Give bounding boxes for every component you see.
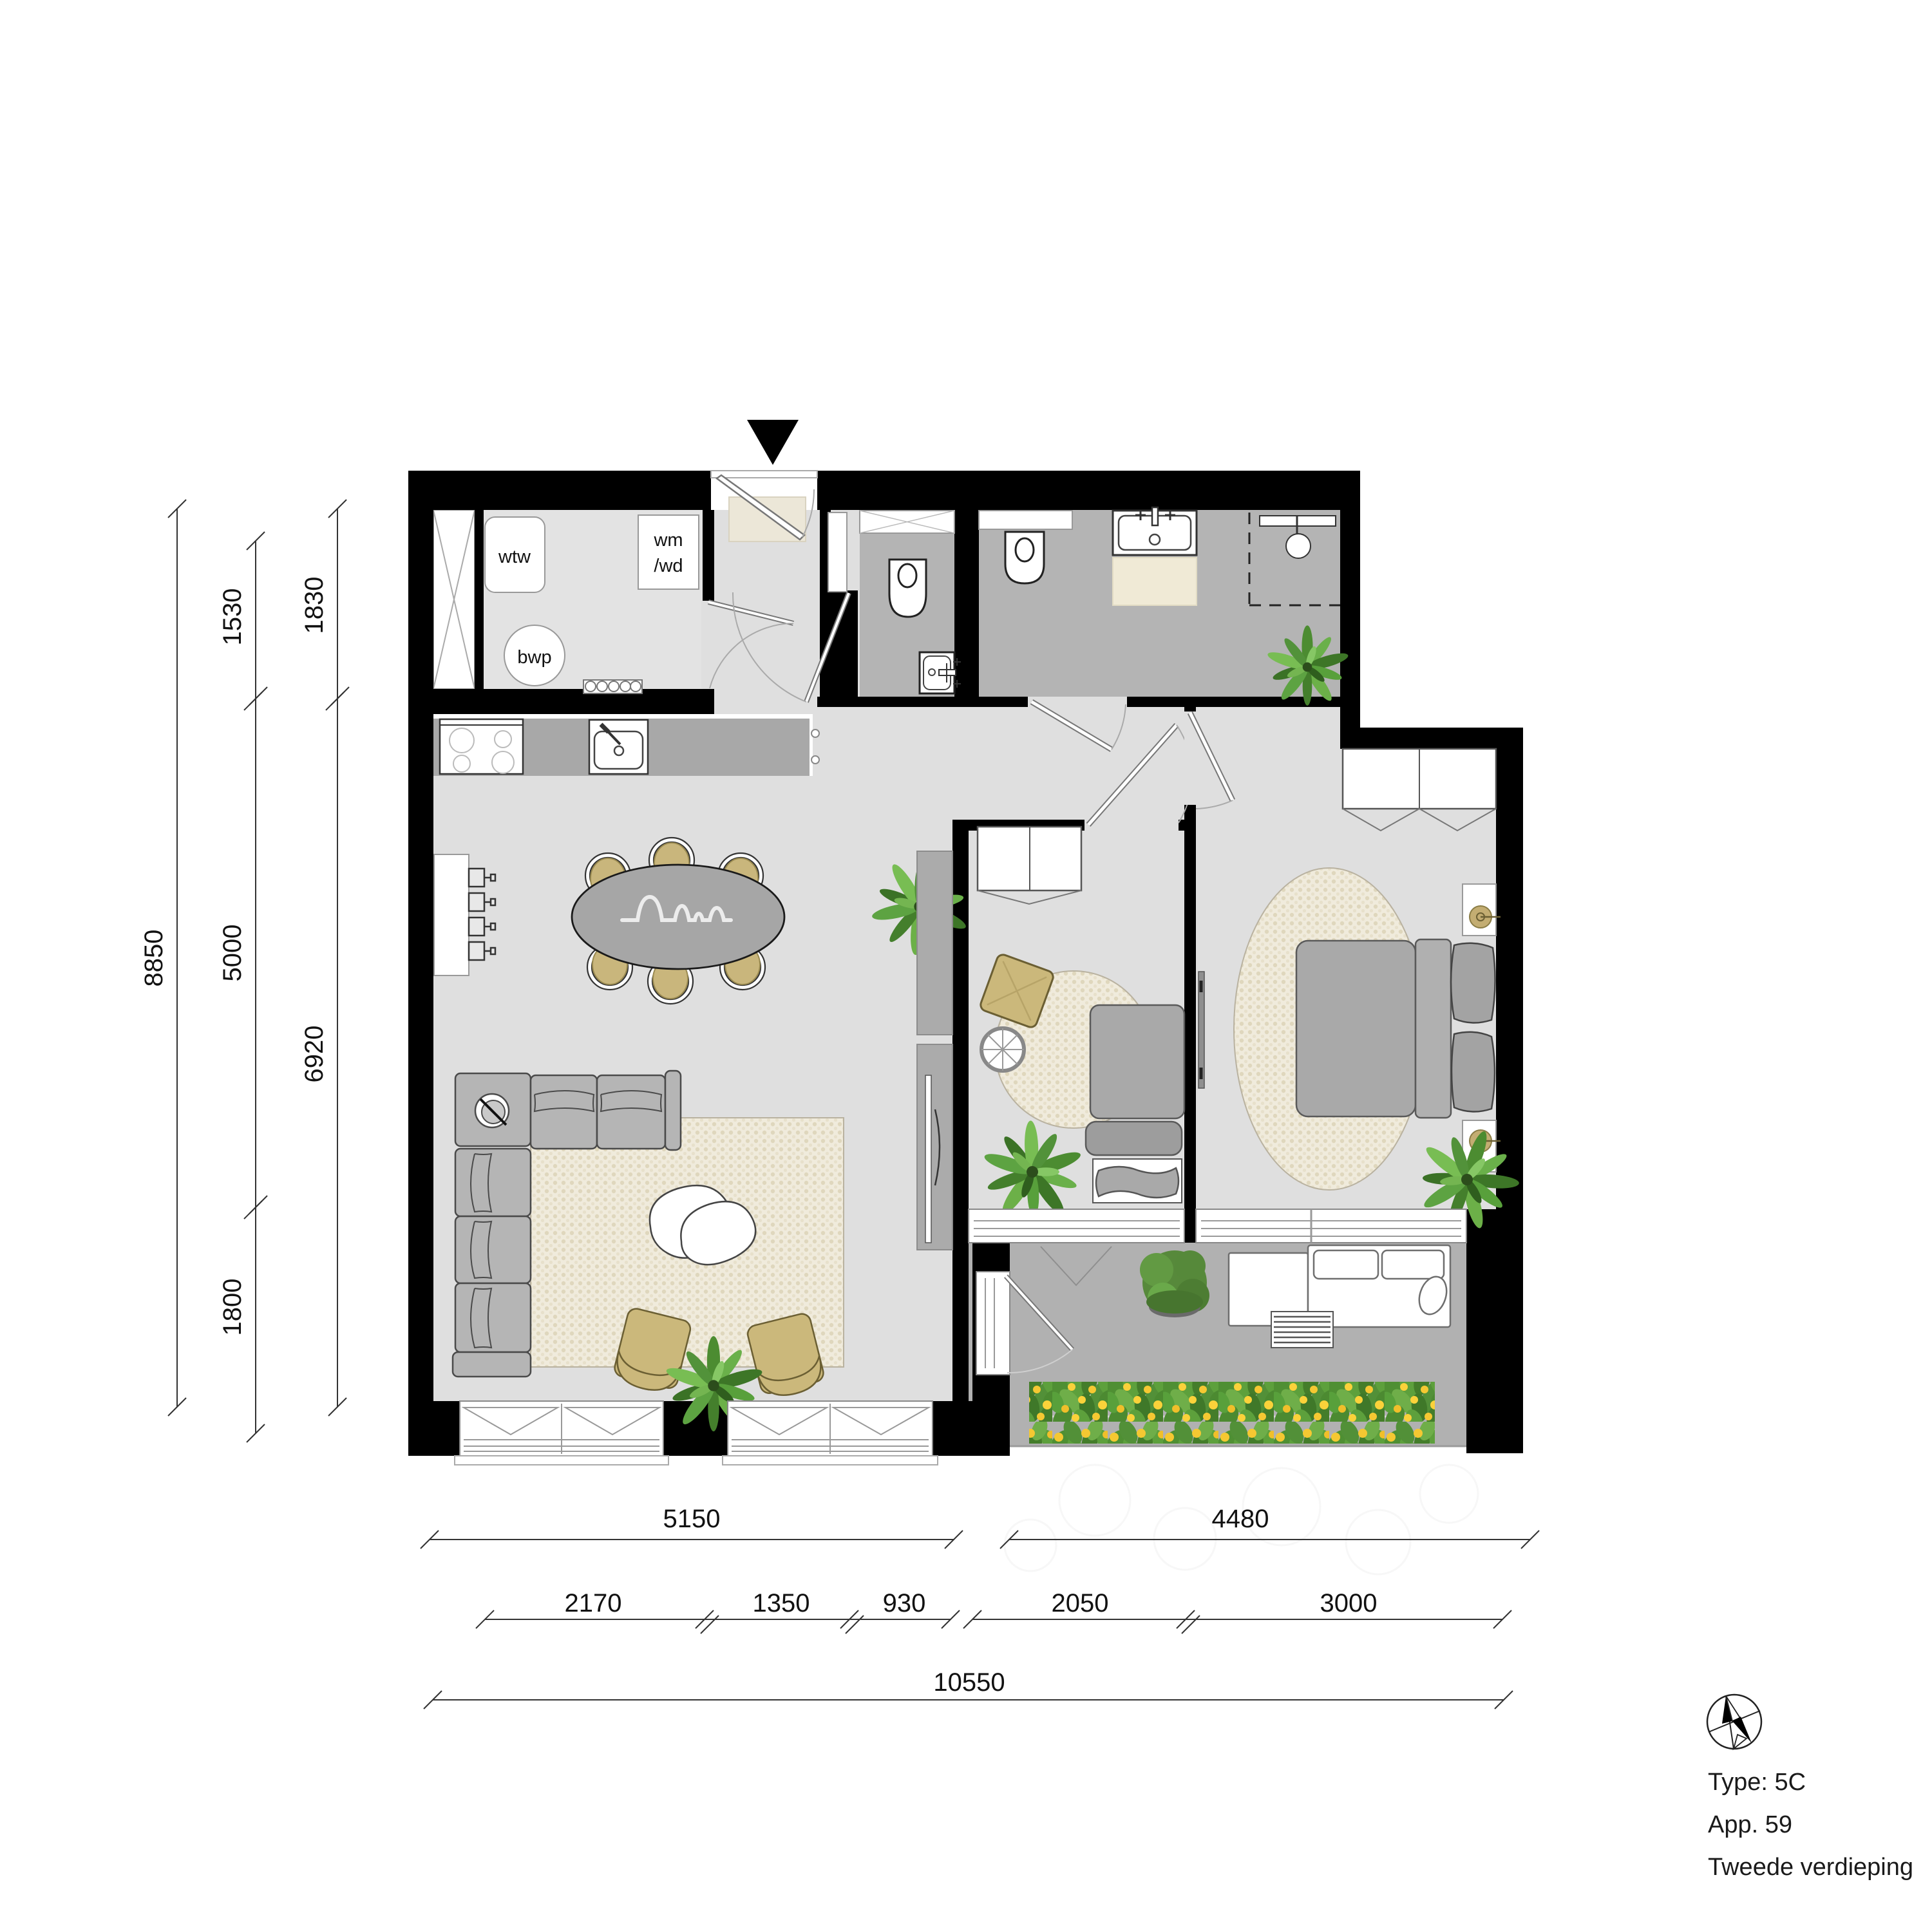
svg-text:Type: 5C: Type: 5C: [1708, 1769, 1806, 1796]
svg-text:10550: 10550: [933, 1668, 1005, 1697]
svg-text:1530: 1530: [218, 589, 247, 646]
svg-text:8850: 8850: [140, 930, 168, 987]
svg-text:/wd: /wd: [654, 556, 683, 576]
svg-text:1350: 1350: [753, 1589, 810, 1617]
svg-text:1830: 1830: [300, 577, 328, 634]
svg-text:App. 59: App. 59: [1708, 1811, 1792, 1838]
svg-text:3000: 3000: [1320, 1589, 1378, 1617]
svg-text:930: 930: [883, 1589, 926, 1617]
svg-text:1800: 1800: [218, 1279, 247, 1336]
svg-text:wtw: wtw: [498, 547, 531, 567]
svg-text:2050: 2050: [1052, 1589, 1109, 1617]
svg-text:4480: 4480: [1212, 1505, 1269, 1533]
svg-text:5150: 5150: [663, 1505, 721, 1533]
svg-text:6920: 6920: [300, 1026, 328, 1083]
svg-text:2170: 2170: [565, 1589, 622, 1617]
svg-text:bwp: bwp: [517, 647, 551, 668]
svg-text:5000: 5000: [218, 925, 247, 982]
svg-text:wm: wm: [653, 530, 683, 551]
svg-text:Tweede verdieping: Tweede verdieping: [1708, 1854, 1913, 1881]
